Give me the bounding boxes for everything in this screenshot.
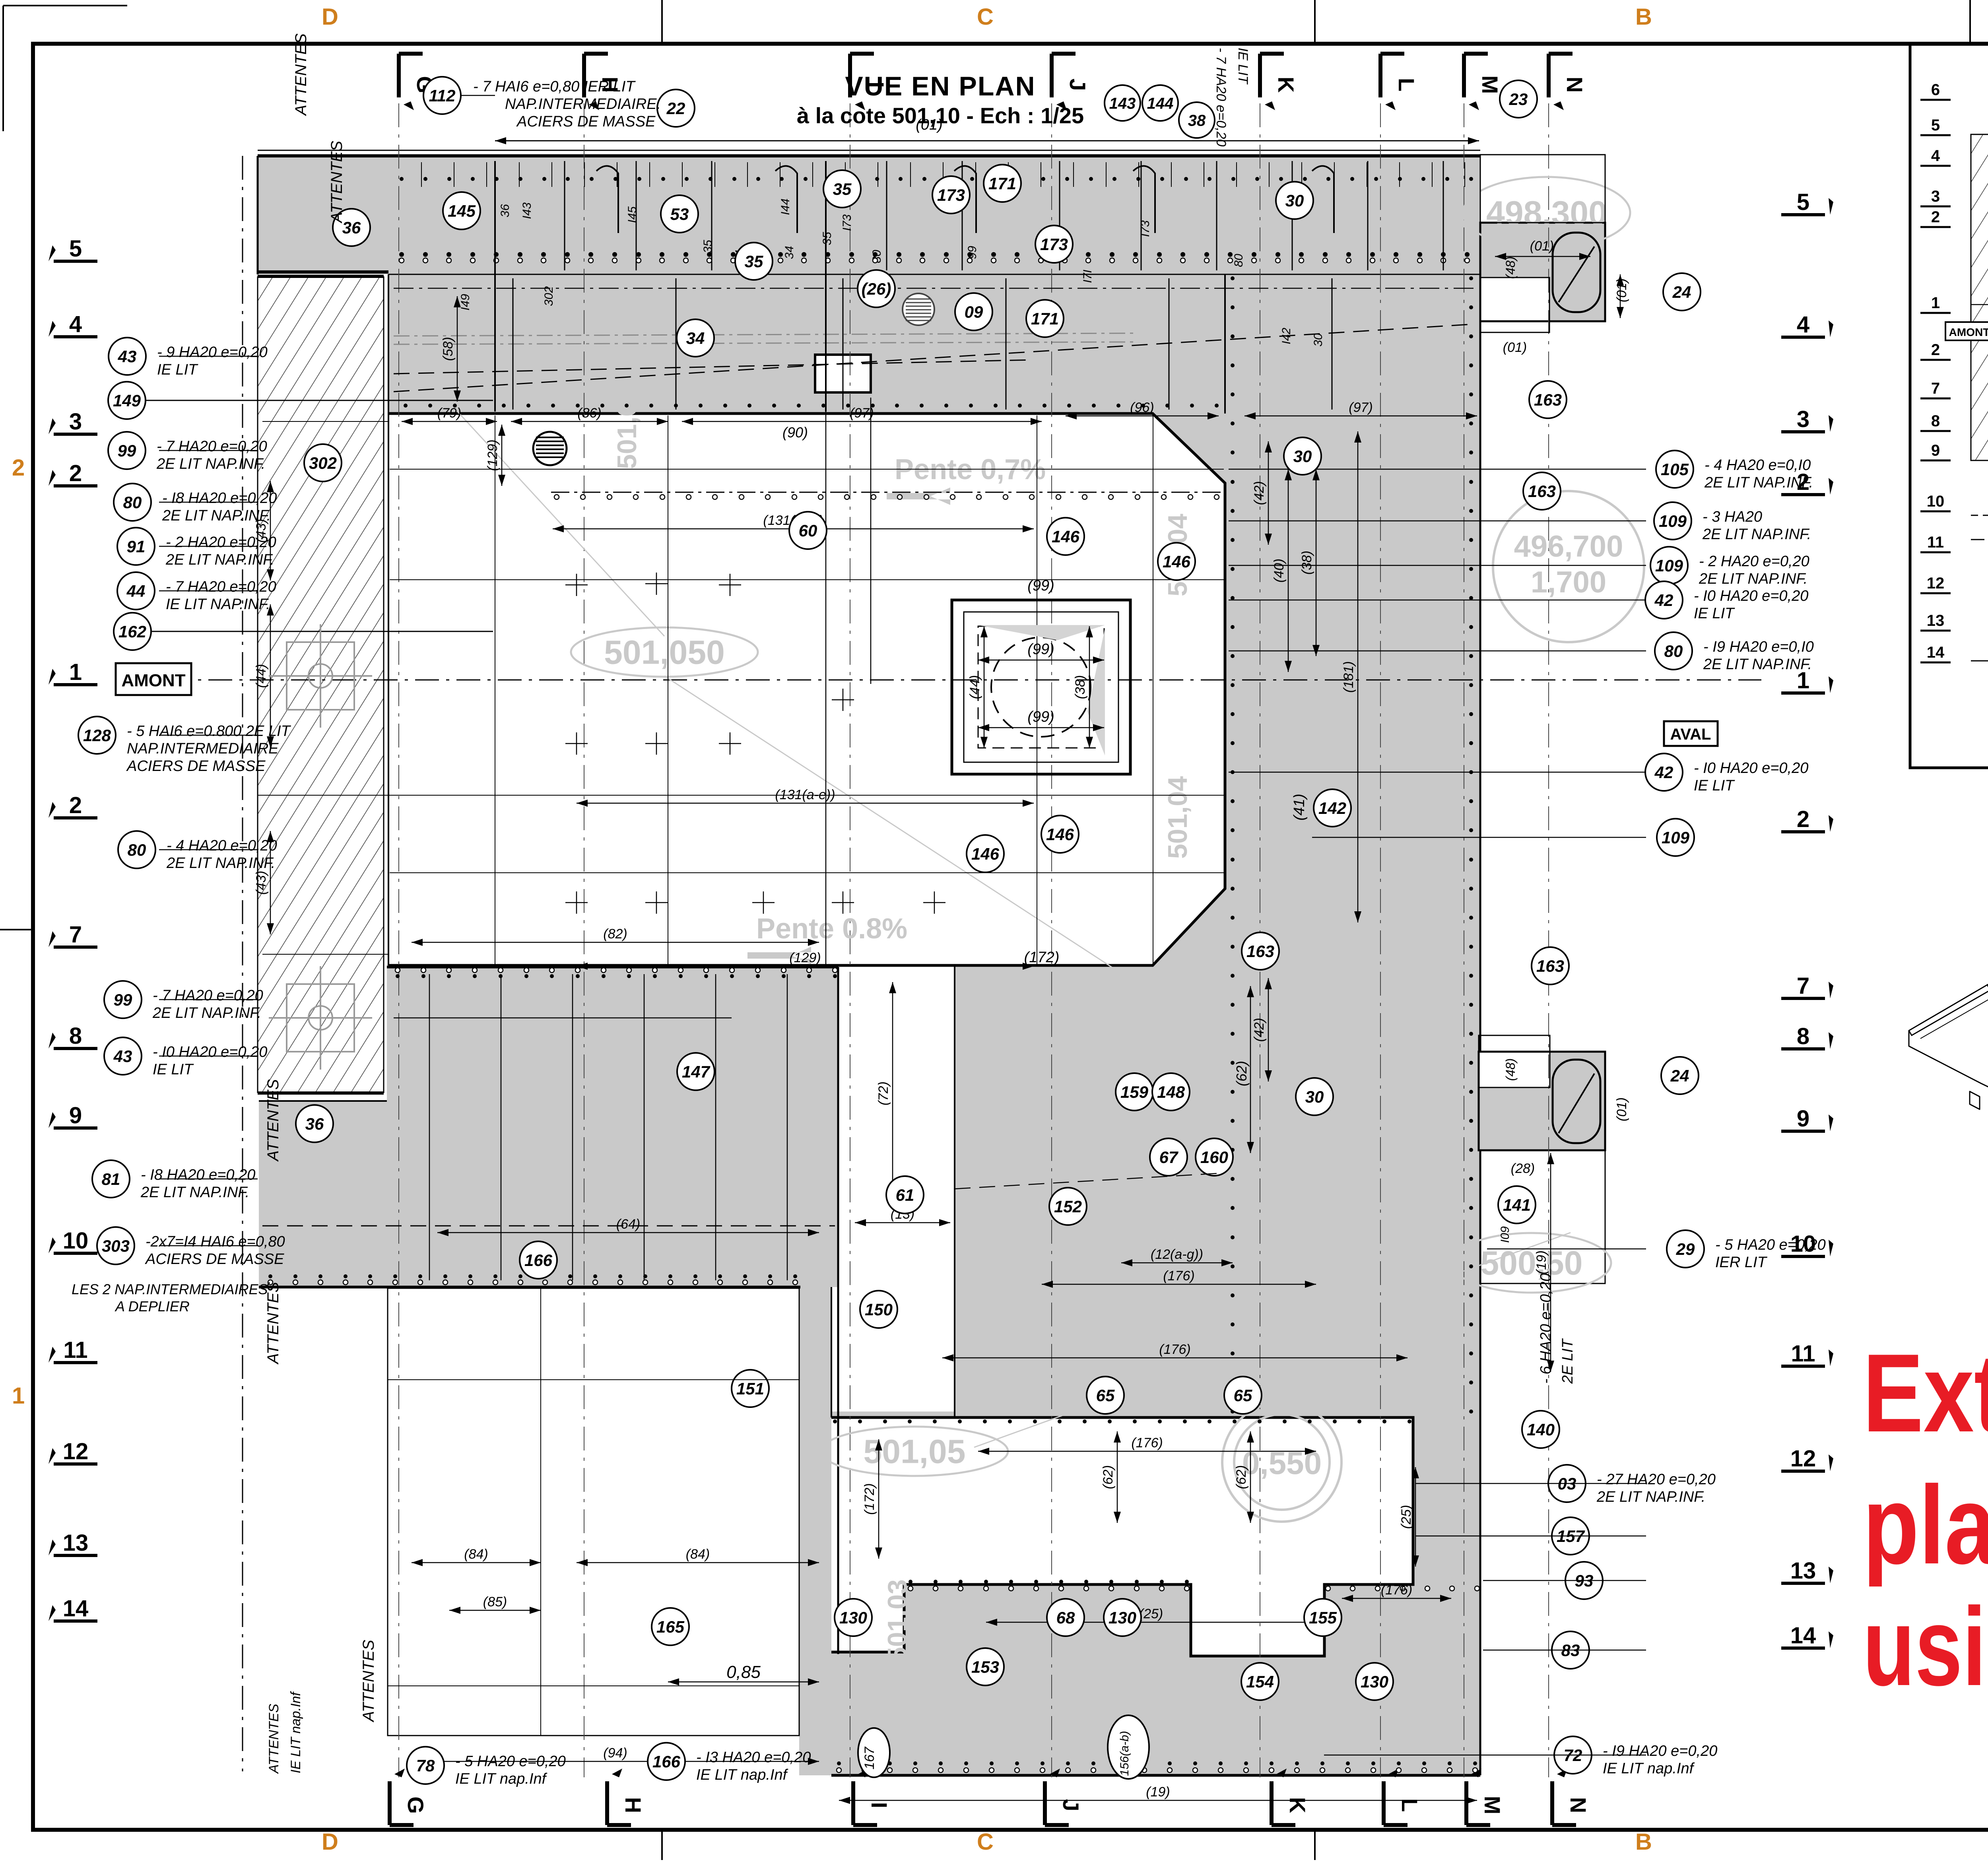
svg-text:146: 146 <box>1046 825 1074 844</box>
svg-text:- 4 HA20 e=0,20: - 4 HA20 e=0,20 <box>167 837 277 854</box>
svg-text:(41): (41) <box>1291 794 1308 821</box>
svg-text:146: 146 <box>971 845 1000 863</box>
svg-text:I45: I45 <box>626 206 639 223</box>
svg-text:(62): (62) <box>1101 1465 1116 1489</box>
svg-text:2: 2 <box>69 792 82 818</box>
svg-text:I44: I44 <box>779 198 792 215</box>
svg-text:29: 29 <box>1676 1240 1695 1258</box>
svg-text:L: L <box>1394 78 1419 91</box>
svg-text:2E LIT NAP.INF.: 2E LIT NAP.INF. <box>140 1184 249 1201</box>
svg-text:99: 99 <box>114 990 132 1009</box>
svg-text:B: B <box>1635 1829 1652 1855</box>
svg-text:(01): (01) <box>1614 1097 1629 1121</box>
svg-text:498,300: 498,300 <box>1486 194 1607 231</box>
svg-text:173: 173 <box>1040 235 1068 254</box>
svg-text:163: 163 <box>1246 942 1274 961</box>
svg-text:145: 145 <box>448 202 476 220</box>
svg-text:173: 173 <box>937 186 965 204</box>
svg-text:- I0 HA20 e=0,20: - I0 HA20 e=0,20 <box>153 1044 267 1060</box>
svg-text:Extrait: Extrait <box>1863 1331 1988 1455</box>
svg-text:3: 3 <box>1931 188 1940 205</box>
svg-text:1: 1 <box>1931 294 1940 312</box>
svg-text:I7I: I7I <box>1081 270 1094 283</box>
svg-text:(176): (176) <box>1163 1268 1194 1283</box>
svg-text:148: 148 <box>1157 1083 1185 1101</box>
svg-text:1,700: 1,700 <box>1531 565 1606 599</box>
svg-text:30: 30 <box>1293 447 1312 466</box>
svg-text:30: 30 <box>1285 191 1304 210</box>
svg-text:- I9 HA20 e=0,I0: - I9 HA20 e=0,I0 <box>1703 639 1814 655</box>
svg-text:99: 99 <box>966 246 979 259</box>
svg-text:22: 22 <box>666 99 685 118</box>
svg-text:(25): (25) <box>1399 1505 1414 1529</box>
svg-text:- 3 HA20: - 3 HA20 <box>1703 509 1762 525</box>
svg-text:2E LIT NAP.INF.: 2E LIT NAP.INF. <box>165 551 274 568</box>
svg-text:(44): (44) <box>967 675 982 699</box>
svg-text:2E LIT NAP.INF.: 2E LIT NAP.INF. <box>1699 571 1807 587</box>
svg-text:(181): (181) <box>1341 661 1356 693</box>
svg-text:M: M <box>1480 1796 1505 1815</box>
svg-text:(48): (48) <box>1503 1058 1518 1081</box>
svg-text:151: 151 <box>736 1379 764 1398</box>
svg-text:ATTENTES: ATTENTES <box>266 1704 282 1774</box>
svg-text:IE LIT nap.Inf: IE LIT nap.Inf <box>455 1771 547 1787</box>
svg-text:IE LIT nap.Inf: IE LIT nap.Inf <box>288 1691 303 1773</box>
svg-text:80: 80 <box>128 841 146 859</box>
svg-text:8: 8 <box>1797 1023 1809 1049</box>
svg-text:14: 14 <box>63 1596 89 1621</box>
svg-text:5: 5 <box>1931 116 1940 134</box>
svg-text:- 5 HAI6 e=0.800 2E LIT: - 5 HAI6 e=0.800 2E LIT <box>127 723 291 740</box>
svg-text:2: 2 <box>1931 341 1940 359</box>
svg-text:AMONT: AMONT <box>121 671 185 690</box>
svg-text:(172): (172) <box>1024 949 1060 966</box>
svg-text:IE LIT: IE LIT <box>1694 605 1735 622</box>
svg-text:8: 8 <box>1931 412 1940 430</box>
svg-text:12: 12 <box>63 1439 89 1464</box>
svg-text:(176): (176) <box>1159 1342 1190 1357</box>
svg-text:163: 163 <box>1528 482 1556 501</box>
svg-text:501,04: 501,04 <box>1163 776 1193 859</box>
svg-text:I73: I73 <box>841 214 854 231</box>
svg-text:(42): (42) <box>1252 1018 1267 1042</box>
svg-text:7: 7 <box>1931 380 1940 397</box>
svg-text:67: 67 <box>1159 1148 1178 1167</box>
svg-text:14: 14 <box>1790 1623 1816 1648</box>
svg-text:11: 11 <box>63 1337 87 1363</box>
svg-text:34: 34 <box>783 246 796 259</box>
svg-text:ACIERS DE MASSE: ACIERS DE MASSE <box>145 1251 284 1268</box>
svg-text:68: 68 <box>1056 1608 1075 1627</box>
svg-text:53: 53 <box>670 205 689 223</box>
svg-text:(72): (72) <box>876 1081 891 1105</box>
svg-text:81: 81 <box>102 1170 120 1188</box>
svg-text:128: 128 <box>83 726 111 745</box>
svg-text:9: 9 <box>1797 1106 1809 1132</box>
svg-text:(79): (79) <box>437 406 461 421</box>
svg-text:(129): (129) <box>789 950 821 965</box>
svg-text:(99): (99) <box>1027 709 1054 725</box>
svg-text:-2x7=I4 HAI6 e=0,80: -2x7=I4 HAI6 e=0,80 <box>146 1233 285 1250</box>
svg-text:165: 165 <box>656 1617 685 1636</box>
svg-text:- 5 HA20 e=0,20: - 5 HA20 e=0,20 <box>1715 1237 1826 1253</box>
svg-text:42: 42 <box>1654 763 1673 782</box>
svg-text:44: 44 <box>126 582 146 600</box>
svg-text:(01): (01) <box>1503 340 1527 355</box>
svg-text:(131(a-e)): (131(a-e)) <box>775 787 835 802</box>
svg-text:usine: usine <box>1863 1585 1988 1709</box>
svg-text:142: 142 <box>1318 799 1346 817</box>
svg-text:- 7 HA20 e=0,20: - 7 HA20 e=0,20 <box>157 438 267 455</box>
svg-text:ATTENTES: ATTENTES <box>328 141 346 223</box>
svg-text:(176): (176) <box>1381 1582 1412 1598</box>
svg-text:14: 14 <box>1927 644 1945 661</box>
svg-text:154: 154 <box>1246 1672 1274 1691</box>
svg-text:(94): (94) <box>603 1746 627 1761</box>
svg-text:NAP.INTERMEDIAIRE.: NAP.INTERMEDIAIRE. <box>505 96 661 113</box>
svg-text:12: 12 <box>1790 1446 1816 1472</box>
svg-text:500,50: 500,50 <box>1481 1244 1583 1281</box>
svg-text:109: 109 <box>1659 512 1687 530</box>
svg-text:- 9 HA20 e=0,20: - 9 HA20 e=0,20 <box>157 344 268 361</box>
svg-text:A DEPLIER: A DEPLIER <box>115 1298 190 1314</box>
svg-text:9: 9 <box>69 1103 82 1128</box>
svg-text:J: J <box>1065 78 1090 91</box>
svg-text:2: 2 <box>69 460 82 486</box>
svg-text:ATTENTES: ATTENTES <box>264 1079 282 1162</box>
svg-text:IE LIT NAP.INF.: IE LIT NAP.INF. <box>166 596 270 613</box>
svg-text:(97): (97) <box>850 406 874 421</box>
svg-text:1: 1 <box>12 1383 25 1409</box>
svg-text:143: 143 <box>1109 95 1136 112</box>
svg-text:(48): (48) <box>1503 256 1518 279</box>
svg-text:- 2 HA20 e=0,20: - 2 HA20 e=0,20 <box>166 534 276 551</box>
svg-text:13: 13 <box>1927 612 1945 629</box>
svg-text:13: 13 <box>63 1530 89 1556</box>
svg-text:ACIERS DE MASSE: ACIERS DE MASSE <box>126 758 266 775</box>
svg-text:4: 4 <box>69 311 82 337</box>
svg-text:- 7 HA20 e=0,20: - 7 HA20 e=0,20 <box>1213 48 1229 147</box>
svg-text:(86): (86) <box>577 406 601 421</box>
svg-text:- I9 HA20 e=0,20: - I9 HA20 e=0,20 <box>1603 1743 1717 1759</box>
svg-text:163: 163 <box>1534 390 1562 409</box>
svg-text:60: 60 <box>799 521 817 540</box>
svg-text:140: 140 <box>1527 1420 1555 1439</box>
svg-text:(62): (62) <box>1233 1061 1250 1086</box>
svg-text:I: I <box>867 1802 892 1808</box>
svg-text:- 7 HA20 e=0,20: - 7 HA20 e=0,20 <box>166 579 276 595</box>
svg-text:141: 141 <box>1503 1196 1531 1214</box>
svg-text:99: 99 <box>118 441 136 460</box>
svg-text:(38): (38) <box>1299 551 1314 575</box>
svg-text:1: 1 <box>69 659 82 685</box>
svg-text:I43: I43 <box>520 202 534 219</box>
svg-text:C: C <box>977 1829 994 1855</box>
svg-text:2E LIT NAP.INF.: 2E LIT NAP.INF. <box>166 855 275 872</box>
svg-text:IE LIT: IE LIT <box>153 1061 194 1078</box>
svg-text:30: 30 <box>1305 1087 1324 1106</box>
svg-text:(84): (84) <box>464 1547 488 1562</box>
svg-text:(84): (84) <box>686 1547 710 1562</box>
svg-text:501,03: 501,03 <box>882 1579 912 1662</box>
svg-text:166: 166 <box>524 1251 553 1270</box>
svg-text:- 6 HA20 e=0,20: - 6 HA20 e=0,20 <box>1538 1273 1554 1384</box>
svg-text:146: 146 <box>1052 527 1080 546</box>
svg-text:B: B <box>1635 4 1652 30</box>
svg-text:(12(a-g)): (12(a-g)) <box>1151 1247 1203 1262</box>
svg-text:D: D <box>322 4 338 30</box>
svg-text:(19): (19) <box>1146 1784 1170 1800</box>
svg-text:LES 2 NAP.INTERMEDIAIRES: LES 2 NAP.INTERMEDIAIRES <box>72 1281 268 1297</box>
svg-text:152: 152 <box>1054 1197 1082 1216</box>
svg-text:D: D <box>322 1829 338 1855</box>
svg-text:2E LIT NAP.INF.: 2E LIT NAP.INF. <box>1703 656 1812 673</box>
svg-text:G: G <box>403 1796 428 1814</box>
svg-text:11: 11 <box>1791 1341 1815 1367</box>
svg-text:N: N <box>1562 77 1587 93</box>
svg-text:(43): (43) <box>254 871 269 895</box>
svg-text:65: 65 <box>1096 1386 1115 1405</box>
svg-text:61: 61 <box>896 1186 914 1204</box>
svg-text:35: 35 <box>745 252 763 271</box>
svg-text:(28): (28) <box>1511 1161 1535 1176</box>
svg-text:130: 130 <box>1109 1608 1136 1627</box>
svg-text:153: 153 <box>971 1658 999 1676</box>
svg-text:11: 11 <box>1927 534 1944 551</box>
svg-text:80: 80 <box>123 493 142 512</box>
svg-text:(85): (85) <box>483 1594 507 1610</box>
svg-text:2E LIT NAP.INF.: 2E LIT NAP.INF. <box>162 507 271 524</box>
svg-text:- I8 HA20 e=0,20: - I8 HA20 e=0,20 <box>141 1167 255 1183</box>
svg-text:2E LIT: 2E LIT <box>1559 1338 1576 1384</box>
svg-text:13: 13 <box>1790 1558 1816 1584</box>
svg-text:AVAL: AVAL <box>1670 726 1711 743</box>
svg-text:(01): (01) <box>916 116 943 133</box>
svg-text:2: 2 <box>1931 208 1940 226</box>
svg-text:I: I <box>864 82 889 88</box>
svg-text:80: 80 <box>1232 254 1245 267</box>
svg-text:2E LIT NAP.INF.: 2E LIT NAP.INF. <box>1702 526 1811 543</box>
svg-text:- 5 HA20 e=0,20: - 5 HA20 e=0,20 <box>455 1753 566 1770</box>
svg-text:147: 147 <box>682 1062 711 1081</box>
svg-text:160: 160 <box>1200 1148 1228 1167</box>
svg-text:302: 302 <box>309 454 337 472</box>
svg-text:IER LIT: IER LIT <box>1715 1254 1768 1271</box>
svg-text:- I8 HA20 e=0,20: - I8 HA20 e=0,20 <box>162 490 277 507</box>
svg-text:2E LIT NAP.INF.: 2E LIT NAP.INF. <box>1704 474 1813 491</box>
svg-text:planarmatures: planarmatures <box>1863 1463 1988 1588</box>
svg-text:109: 109 <box>1662 828 1690 847</box>
svg-text:(90): (90) <box>782 424 808 441</box>
svg-text:150: 150 <box>865 1300 893 1319</box>
svg-text:3: 3 <box>1797 406 1809 432</box>
svg-text:65: 65 <box>1234 1386 1252 1405</box>
svg-text:N: N <box>1566 1797 1591 1813</box>
svg-text:166: 166 <box>652 1752 681 1771</box>
svg-text:ATTENTES: ATTENTES <box>264 1282 282 1365</box>
svg-text:2E LIT NAP.INF.: 2E LIT NAP.INF. <box>152 1005 261 1021</box>
svg-text:2E LIT NAP.INF.: 2E LIT NAP.INF. <box>1596 1489 1705 1505</box>
svg-text:9: 9 <box>1931 442 1940 459</box>
svg-text:91: 91 <box>127 537 146 556</box>
svg-text:(25): (25) <box>1139 1606 1163 1621</box>
svg-text:34: 34 <box>686 329 705 348</box>
svg-text:130: 130 <box>839 1608 867 1627</box>
svg-text:2: 2 <box>1797 806 1809 832</box>
svg-text:12: 12 <box>1927 575 1945 592</box>
svg-text:3: 3 <box>69 409 82 435</box>
svg-text:43: 43 <box>113 1047 132 1066</box>
svg-text:501,03: 501,03 <box>612 386 642 469</box>
svg-text:IE LIT nap.Inf: IE LIT nap.Inf <box>696 1767 788 1783</box>
svg-text:(38): (38) <box>1073 675 1088 699</box>
svg-text:IE LIT: IE LIT <box>157 361 198 378</box>
svg-text:8: 8 <box>69 1023 82 1049</box>
svg-text:144: 144 <box>1147 95 1174 112</box>
svg-text:- I3 HA20 e=0,20: - I3 HA20 e=0,20 <box>696 1749 811 1766</box>
svg-text:156(a-b): 156(a-b) <box>1118 1731 1131 1776</box>
svg-text:163: 163 <box>1536 957 1564 975</box>
svg-text:(62): (62) <box>1234 1465 1249 1489</box>
svg-text:- I0 HA20 e=0,20: - I0 HA20 e=0,20 <box>1694 760 1808 777</box>
svg-text:(99): (99) <box>1027 577 1054 594</box>
svg-text:Pente 0.8%: Pente 0.8% <box>756 913 907 945</box>
svg-text:23: 23 <box>1509 90 1528 109</box>
svg-text:(19): (19) <box>1534 1250 1549 1274</box>
svg-text:146: 146 <box>1163 552 1191 571</box>
svg-text:496,700: 496,700 <box>1514 530 1623 563</box>
svg-text:171: 171 <box>1031 309 1059 328</box>
svg-text:30: 30 <box>1312 333 1325 347</box>
svg-text:IE LIT nap.Inf: IE LIT nap.Inf <box>1603 1760 1695 1777</box>
svg-text:NAP.INTERMEDIAIRE: NAP.INTERMEDIAIRE <box>127 740 279 757</box>
svg-text:42: 42 <box>1654 591 1673 610</box>
svg-text:155: 155 <box>1309 1608 1337 1627</box>
svg-text:H: H <box>621 1797 646 1813</box>
svg-text:IE LIT: IE LIT <box>1235 48 1250 85</box>
svg-text:2E LIT NAP.INF.: 2E LIT NAP.INF. <box>156 456 265 472</box>
svg-text:303: 303 <box>102 1237 130 1255</box>
svg-text:5: 5 <box>1797 189 1809 215</box>
svg-text:4: 4 <box>1931 147 1940 165</box>
svg-text:7: 7 <box>1797 973 1809 999</box>
svg-text:IE LIT: IE LIT <box>1694 777 1735 794</box>
svg-text:(129): (129) <box>485 439 500 471</box>
svg-text:(99): (99) <box>1027 641 1054 658</box>
svg-text:(42): (42) <box>1252 481 1267 505</box>
svg-text:09: 09 <box>965 303 983 321</box>
svg-text:130: 130 <box>1361 1672 1388 1691</box>
svg-text:K: K <box>1285 1797 1310 1813</box>
svg-text:10: 10 <box>63 1228 89 1254</box>
svg-text:171: 171 <box>988 174 1016 193</box>
svg-text:ATTENTES: ATTENTES <box>292 33 310 116</box>
svg-text:I49: I49 <box>459 294 472 311</box>
svg-text:24: 24 <box>1670 1066 1689 1085</box>
svg-text:4: 4 <box>1797 312 1809 338</box>
svg-text:C: C <box>977 4 994 30</box>
svg-text:(44): (44) <box>254 664 269 688</box>
svg-text:2: 2 <box>12 455 25 481</box>
svg-text:36: 36 <box>499 204 512 217</box>
svg-text:(01): (01) <box>1530 239 1554 254</box>
svg-text:0,85: 0,85 <box>726 1662 761 1682</box>
svg-text:(64): (64) <box>616 1217 640 1232</box>
svg-text:AMONT: AMONT <box>1949 326 1988 338</box>
svg-text:35: 35 <box>833 180 852 198</box>
svg-text:109: 109 <box>1655 556 1683 575</box>
svg-text:6: 6 <box>1931 81 1940 99</box>
svg-text:36: 36 <box>305 1114 324 1133</box>
svg-text:35: 35 <box>701 240 714 253</box>
svg-text:302: 302 <box>542 286 555 306</box>
svg-text:38: 38 <box>1188 112 1206 129</box>
svg-text:43: 43 <box>118 347 137 366</box>
svg-text:(26): (26) <box>862 280 891 298</box>
svg-text:35: 35 <box>821 232 834 245</box>
svg-text:167: 167 <box>862 1747 877 1770</box>
svg-text:24: 24 <box>1672 283 1691 301</box>
svg-text:162: 162 <box>118 622 146 641</box>
svg-text:- 7 HAI6 e=0,80 IER LIT: - 7 HAI6 e=0,80 IER LIT <box>473 78 636 95</box>
svg-text:149: 149 <box>113 391 141 410</box>
svg-text:ACIERS DE MASSE: ACIERS DE MASSE <box>516 113 656 130</box>
svg-text:ATTENTES: ATTENTES <box>360 1640 377 1722</box>
svg-text:- 27 HA20 e=0,20: - 27 HA20 e=0,20 <box>1597 1471 1716 1488</box>
svg-text:78: 78 <box>416 1756 435 1775</box>
svg-text:- 7 HA20 e=0,20: - 7 HA20 e=0,20 <box>153 987 263 1004</box>
svg-text:- 2 HA20 e=0,20: - 2 HA20 e=0,20 <box>1699 553 1809 570</box>
svg-text:I09: I09 <box>1499 1226 1512 1243</box>
svg-text:K: K <box>1274 77 1299 93</box>
svg-text:(82): (82) <box>603 926 627 942</box>
svg-text:80: 80 <box>1664 642 1683 660</box>
svg-text:(96): (96) <box>1130 400 1154 415</box>
svg-text:- 4 HA20 e=0,I0: - 4 HA20 e=0,I0 <box>1705 457 1811 474</box>
svg-text:(40): (40) <box>1272 559 1287 582</box>
svg-text:105: 105 <box>1661 460 1689 479</box>
svg-text:(176): (176) <box>1131 1435 1163 1450</box>
svg-text:(58): (58) <box>441 337 456 361</box>
svg-text:7: 7 <box>69 922 82 948</box>
svg-text:10: 10 <box>1927 493 1945 510</box>
svg-text:(172): (172) <box>862 1483 877 1514</box>
svg-text:501,02: 501,02 <box>596 983 626 1066</box>
svg-text:159: 159 <box>1120 1083 1149 1101</box>
svg-text:M: M <box>1477 76 1503 94</box>
svg-text:112: 112 <box>429 86 456 105</box>
svg-text:501,050: 501,050 <box>604 633 725 671</box>
svg-text:- I0 HA20 e=0,20: - I0 HA20 e=0,20 <box>1694 588 1808 604</box>
svg-text:(97): (97) <box>1349 400 1373 415</box>
svg-text:5: 5 <box>69 236 82 262</box>
